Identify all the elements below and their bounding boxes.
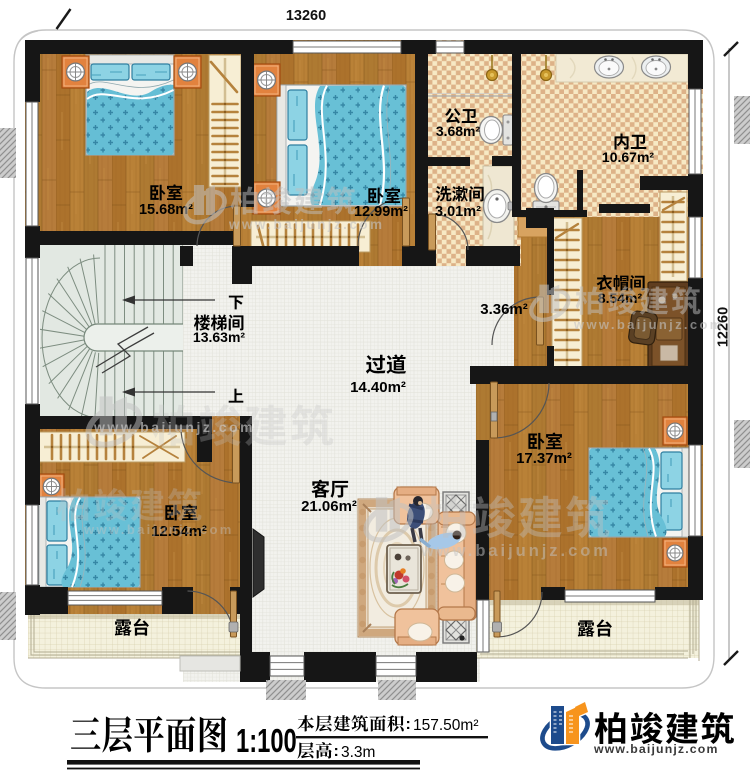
svg-text:17.37m²: 17.37m² [516,450,572,467]
svg-text::: : [334,743,339,760]
svg-text:www.baijunjz.com: www.baijunjz.com [593,742,719,756]
svg-text::: : [406,716,411,733]
svg-text:www.baijunjz.com: www.baijunjz.com [573,317,724,332]
svg-text:1:100: 1:100 [236,723,297,760]
svg-text:10.67m²: 10.67m² [602,149,654,165]
svg-text:3.68m²: 3.68m² [436,123,481,139]
svg-text:13.63m²: 13.63m² [193,329,245,345]
svg-text:www.baijunjz.com: www.baijunjz.com [228,217,384,232]
svg-text:www.baijunjz.com: www.baijunjz.com [93,419,255,435]
svg-text:3.01m²: 3.01m² [435,204,481,220]
svg-text:21.06m²: 21.06m² [301,498,357,515]
svg-text:www.baijunjz.com: www.baijunjz.com [83,522,234,537]
svg-text:13260: 13260 [286,8,326,24]
svg-text:157.50m²: 157.50m² [413,717,478,734]
svg-text:14.40m²: 14.40m² [350,379,406,396]
svg-text:3.36m²: 3.36m² [480,301,528,318]
svg-text:www.baijunjz.com: www.baijunjz.com [420,542,611,560]
svg-text:3.3m: 3.3m [341,744,375,761]
